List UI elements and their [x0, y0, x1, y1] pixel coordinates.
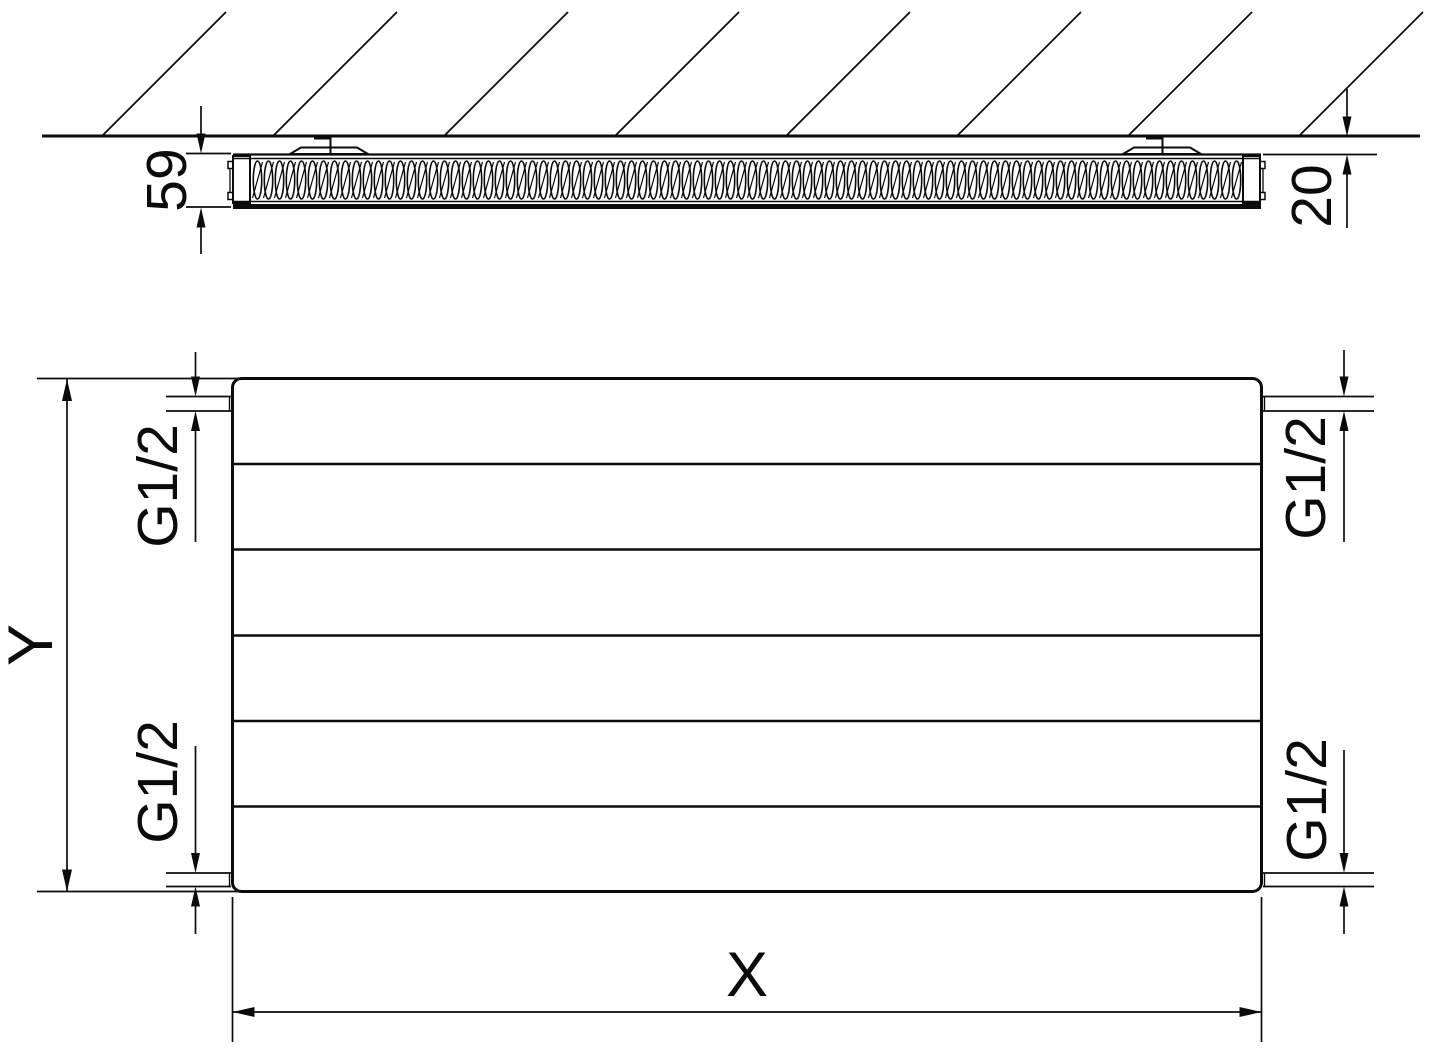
arrowhead	[62, 870, 72, 892]
connection-label-bottom-left: G1/2	[126, 720, 190, 844]
dimension-width: X	[233, 897, 1262, 1042]
dimension-depth: 59	[135, 106, 231, 254]
top-section-view: 59 20	[42, 12, 1423, 254]
bracket-hook-right	[1146, 139, 1163, 155]
height-dimension-label: Y	[0, 624, 66, 666]
connection-label-top-right: G1/2	[1274, 416, 1338, 540]
arrowhead	[62, 379, 72, 401]
width-dimension-label: X	[726, 940, 768, 1010]
dimension-connection-bottom-right: G1/2	[1275, 738, 1349, 934]
arrowhead	[233, 1007, 255, 1017]
arrowhead	[1340, 411, 1349, 431]
connection-stub-top-left	[166, 397, 231, 412]
connection-stub-bottom-left	[166, 873, 231, 887]
dimension-wall-gap: 20	[1263, 89, 1377, 228]
mounting-bracket-right	[1123, 139, 1201, 155]
arrowhead	[191, 377, 200, 397]
dimension-connection-bottom-left: G1/2	[126, 720, 200, 934]
bracket-hook-left	[314, 139, 331, 155]
arrowhead	[1340, 887, 1349, 907]
arrowhead	[191, 887, 200, 907]
connection-stub-bottom-right	[1263, 873, 1374, 887]
panel-groove-lines	[234, 464, 1260, 807]
drawing-svg: 59 20	[0, 0, 1443, 1055]
depth-dimension-label: 59	[135, 148, 199, 211]
arrowhead	[191, 853, 200, 873]
end-cap-right	[1243, 156, 1265, 203]
radiator-dimension-drawing: 59 20	[0, 0, 1443, 1055]
dimension-connection-top-right: G1/2	[1274, 350, 1349, 542]
dimension-height: Y	[0, 379, 250, 892]
wall-section	[42, 12, 1423, 136]
mounting-bracket-left	[290, 139, 368, 155]
connection-stub-top-right	[1263, 397, 1374, 412]
front-view: G1/2 G1/2 G1/2 G1/2	[0, 350, 1374, 1042]
wall-gap-dimension-label: 20	[1280, 164, 1344, 227]
radiator-cross-section	[228, 155, 1265, 207]
connection-label-bottom-right: G1/2	[1275, 738, 1339, 862]
convector-fins	[252, 160, 1243, 200]
arrowhead	[1343, 117, 1352, 137]
dimension-connection-top-left: G1/2	[126, 352, 200, 548]
arrowhead	[1340, 853, 1349, 873]
arrowhead	[191, 411, 200, 431]
connection-label-top-left: G1/2	[126, 424, 190, 548]
wall-hatch-lines	[102, 12, 1423, 136]
arrowhead	[1340, 377, 1349, 397]
arrowhead	[1240, 1007, 1262, 1017]
end-cap-left	[228, 156, 250, 203]
